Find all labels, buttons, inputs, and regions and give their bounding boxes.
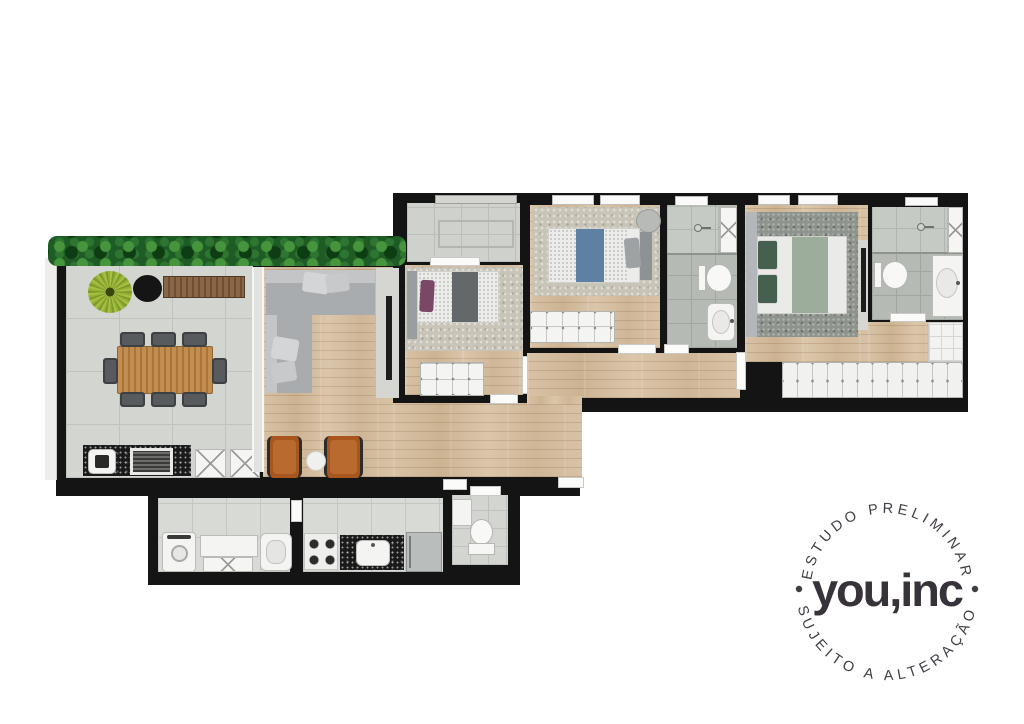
fridge-handle: [409, 536, 411, 568]
lavabo-basin-icon: [452, 499, 472, 526]
balcony-railing: [435, 195, 517, 204]
bedroom1-door: [490, 394, 518, 404]
master-headboard: [746, 212, 757, 337]
master-bath-window: [905, 197, 938, 206]
bathroom1-shower-area: [667, 207, 718, 254]
stamp-dot-right: [972, 586, 978, 592]
kitchen-door: [443, 479, 467, 490]
corridor-hall-junction: [527, 396, 582, 405]
developer-stamp: ESTUDO PRELIMINAR SUJEITO A ALTERAÇÃO yo…: [783, 485, 991, 693]
developer-logo: you,inc: [812, 564, 963, 616]
corridor-floor: [527, 353, 740, 398]
bed2-sheet-pattern: [549, 229, 576, 282]
dining-chair: [212, 358, 227, 384]
floorplan-render: ESTUDO PRELIMINAR SUJEITO A ALTERAÇÃO yo…: [0, 0, 1024, 724]
dining-chair: [151, 332, 176, 347]
faucet-master: [956, 281, 960, 285]
bathroom1-door: [664, 344, 689, 354]
bedroom2-dresser: [530, 311, 615, 343]
terrace-outer-ledge: [45, 258, 57, 480]
corridor-entry: [522, 356, 528, 394]
washer-icon: [162, 532, 196, 572]
master-shower-area: [872, 207, 947, 253]
bedroom2-window-2: [600, 195, 640, 205]
laundry-kitchen-door: [291, 500, 302, 522]
laundry-cabinet: [203, 557, 253, 572]
bedroom1-dresser: [420, 362, 484, 396]
dining-chair: [120, 332, 145, 347]
lounge-chair-leather: [324, 436, 363, 478]
lounge-chair-leather: [267, 436, 302, 478]
sofa-pillow: [270, 336, 299, 362]
sink-icon-master: [936, 268, 958, 298]
hall-end-threshold: [558, 477, 584, 488]
master-bath-cabinet: [948, 207, 963, 253]
master-pillow: [757, 274, 778, 304]
tv-icon-master: [861, 248, 866, 312]
bed2-pillow: [624, 237, 642, 268]
master-window-2: [798, 195, 838, 205]
master-door: [736, 352, 746, 390]
kitchen-faucet: [371, 543, 375, 547]
dining-chair: [151, 392, 176, 407]
sofa-pillow: [325, 273, 350, 294]
master-sage-throw: [792, 237, 828, 313]
grill-icon: [130, 448, 173, 475]
toilet-tank-lavabo: [468, 543, 495, 555]
bathroom1-cabinet: [720, 207, 737, 253]
bed1-headboard: [407, 271, 417, 339]
toilet-bowl-bath1: [706, 264, 732, 292]
dining-chair: [182, 392, 207, 407]
sliding-glass-door: [252, 267, 264, 472]
hedge-plants-icon: [48, 236, 406, 266]
bed1-purple-pillow: [419, 280, 435, 313]
laundry-tub-basin: [266, 540, 286, 564]
side-table: [306, 451, 326, 471]
bed1-throw: [452, 272, 478, 322]
tv-icon: [386, 296, 392, 380]
round-coffee-table: [133, 275, 162, 302]
terrace-storage-cabinet: [195, 449, 226, 478]
sofa-pillow: [271, 360, 298, 384]
bed1-sheet-pattern: [478, 272, 498, 322]
washer-door: [171, 545, 188, 562]
shower-arm: [701, 227, 711, 229]
bed2-headboard: [640, 232, 652, 280]
master-window: [758, 195, 790, 205]
bathroom1-window: [675, 196, 708, 206]
toilet-icon-bath1: [698, 265, 706, 291]
dining-chair: [120, 392, 145, 407]
terrace-sink-basin: [95, 455, 109, 468]
master-bath-door: [890, 313, 926, 322]
dining-chair: [103, 358, 118, 384]
bedroom2-window: [552, 195, 594, 205]
faucet-bath1: [730, 319, 734, 323]
potted-plant-icon: [88, 271, 132, 313]
fridge-icon: [406, 532, 442, 572]
stamp-dot-left: [796, 586, 802, 592]
bed2-blue-runner: [576, 229, 604, 282]
dining-table-icon: [117, 346, 213, 394]
washer-controls: [167, 535, 191, 539]
balcony-door-threshold: [430, 257, 480, 266]
sideboard: [163, 276, 245, 298]
bathroom1-shower-glass: [667, 253, 737, 255]
closet-shelving: [928, 322, 963, 362]
hall-floor: [393, 403, 582, 477]
stove-icon: [304, 533, 338, 570]
bed2-sheet-pattern: [604, 229, 627, 282]
dining-chair: [182, 332, 207, 347]
master-pillow: [757, 240, 778, 270]
wardrobe-icon-master-closet: [782, 362, 963, 398]
laundry-counter: [200, 535, 258, 557]
toilet-icon-lavabo: [470, 519, 493, 545]
balcony-table: [438, 220, 514, 248]
basin-bath1: [712, 310, 730, 334]
toilet-icon-master: [874, 262, 882, 288]
toilet-bowl-master: [882, 261, 908, 289]
shower-arm-master: [924, 226, 934, 228]
lavabo-door: [470, 486, 501, 496]
bedroom2-door: [618, 344, 656, 354]
